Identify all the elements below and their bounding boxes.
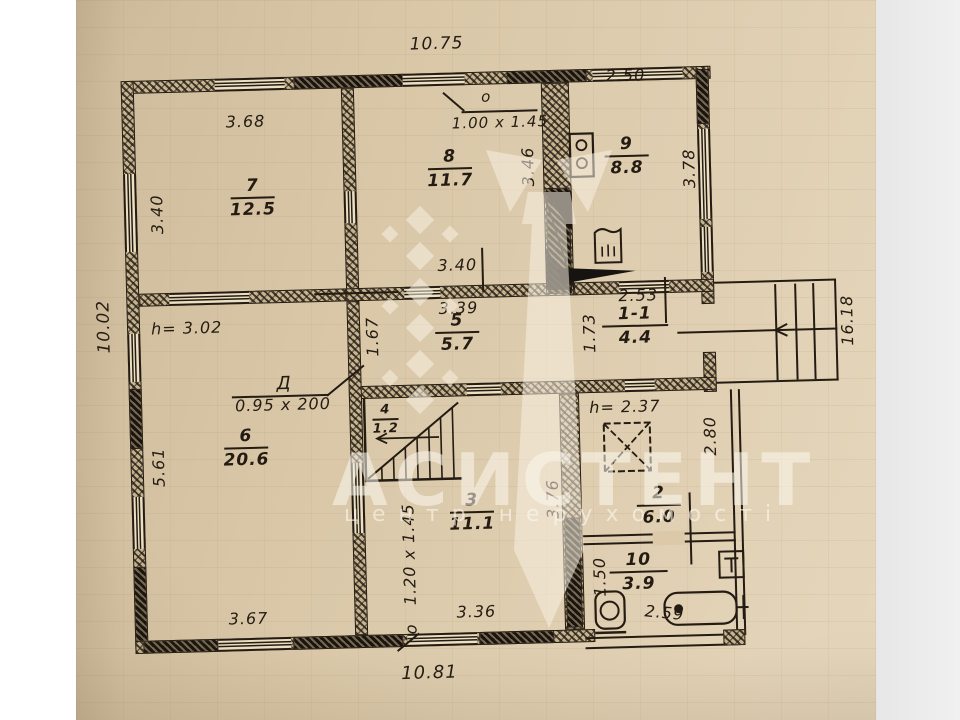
dim-corridor-b: 3.39 <box>438 298 478 318</box>
ceiling-height-main: h= 3.02 <box>151 318 223 339</box>
window-symbol <box>697 129 712 219</box>
door-d-label: Д <box>276 373 292 394</box>
room-area: 6.0 <box>604 505 715 529</box>
dim-room7-height: 3.40 <box>147 194 167 234</box>
dim-porch-side: 16.18 <box>837 295 857 346</box>
window-symbol <box>218 637 291 652</box>
window-symbol <box>127 334 141 382</box>
room-area: 4.4 <box>587 326 684 350</box>
wall-segment <box>695 69 709 124</box>
room-3-label: 3 11.1 <box>416 489 527 536</box>
room-4-label: 4 1.2 <box>361 398 410 437</box>
window-symbol <box>215 77 285 92</box>
dim-room6-height: 5.61 <box>149 447 169 487</box>
room-area: 11.7 <box>395 168 506 192</box>
wall-segment <box>143 639 218 654</box>
entry-arrow-icon <box>675 319 845 341</box>
room-area: 11.1 <box>417 512 528 536</box>
room-area: 3.9 <box>606 572 673 595</box>
window-bottom-label: о <box>401 623 420 634</box>
room-number: 4 <box>372 402 399 421</box>
door-d-size: 0.95 x 200 <box>235 394 331 416</box>
room-2-label: 2 6.0 <box>603 482 714 529</box>
window-top-size: 1.00 x 1.45 <box>452 112 549 133</box>
dim-room5-height: 1.67 <box>362 317 382 357</box>
room-area: 8.8 <box>572 156 683 180</box>
room-number: 6 <box>223 425 268 449</box>
window-symbol <box>402 72 464 87</box>
room-number: 7 <box>230 175 275 199</box>
room-7-label: 7 12.5 <box>192 174 313 221</box>
wall-segment <box>129 389 144 449</box>
room-10-label: 10 3.9 <box>605 549 672 595</box>
room-number: 3 <box>449 490 494 514</box>
window-symbol <box>700 227 714 272</box>
porch-outline <box>714 279 836 284</box>
dim-room6-width: 3.67 <box>228 609 268 629</box>
wall-segment <box>723 629 745 646</box>
room-area: 20.6 <box>181 447 312 471</box>
dim-room3-width: 3.36 <box>456 602 496 622</box>
shower-box-icon <box>602 420 653 473</box>
ceiling-height-annex: h= 2.37 <box>589 396 661 417</box>
dim-top-overall: 10.75 <box>409 33 463 54</box>
dim-corridor-a: 3.40 <box>437 255 477 275</box>
photo-right-margin <box>876 0 960 720</box>
room-number: 9 <box>604 133 649 157</box>
floor-plan-drawing: 7 12.5 8 11.7 9 8.8 5 5.7 1-1 4.4 6 20.6… <box>67 0 886 720</box>
leader-line <box>442 92 465 112</box>
window-bottom-label-group: о 1.20 x 1.45 <box>398 503 420 634</box>
room-number: 10 <box>609 549 667 574</box>
room-area: 12.5 <box>193 197 314 221</box>
dim-room7-width: 3.68 <box>225 111 265 131</box>
wall-segment <box>293 634 403 650</box>
window-symbol <box>169 291 249 306</box>
window-symbol <box>404 286 440 300</box>
window-symbol <box>625 378 655 392</box>
wall-segment <box>506 69 586 84</box>
wall-segment <box>479 630 554 645</box>
room-8-label: 8 11.7 <box>394 145 505 192</box>
dim-room3-height: 3.76 <box>543 479 563 519</box>
wall-segment <box>564 517 583 627</box>
room-number: 8 <box>427 146 472 170</box>
room-area: 5.7 <box>412 332 503 355</box>
boiler-icon <box>593 224 624 265</box>
dim-room1-1-width: 2.53 <box>618 285 658 305</box>
wall-segment <box>133 567 148 645</box>
dim-bottom-overall: 10.81 <box>401 662 458 684</box>
window-symbol <box>131 497 145 549</box>
door-opening <box>653 531 685 546</box>
blueprint-paper: 7 12.5 8 11.7 9 8.8 5 5.7 1-1 4.4 6 20.6… <box>76 0 876 720</box>
wall-segment <box>349 377 717 400</box>
room-area: 1.2 <box>362 420 410 437</box>
room-number: 1-1 <box>602 303 668 328</box>
window-symbol <box>467 382 501 396</box>
window-top-label: о <box>481 88 492 106</box>
heater-icon <box>717 549 746 580</box>
room-9-label: 9 8.8 <box>571 133 682 180</box>
dim-room8-height: 3.46 <box>518 147 538 187</box>
dim-room1-1-height: 1.73 <box>579 313 599 353</box>
dim-room10-height: 1.50 <box>590 557 610 597</box>
room-1-1-label: 1-1 4.4 <box>587 303 684 349</box>
dim-annex-side: 2.80 <box>700 416 720 456</box>
dim-tick <box>481 248 484 292</box>
dim-room9-height: 3.78 <box>679 148 699 188</box>
room-number: 2 <box>636 483 681 507</box>
window-symbol <box>344 191 358 223</box>
room-6-label: 6 20.6 <box>181 424 312 471</box>
dim-top-right: 2.50 <box>605 65 645 85</box>
dim-bath-length: 2.59 <box>644 601 685 624</box>
dim-left-overall: 10.02 <box>93 300 114 354</box>
window-bottom-size: 1.20 x 1.45 <box>398 503 420 605</box>
window-symbol <box>123 174 138 252</box>
floor-plan-photo: 7 12.5 8 11.7 9 8.8 5 5.7 1-1 4.4 6 20.6… <box>0 0 960 720</box>
